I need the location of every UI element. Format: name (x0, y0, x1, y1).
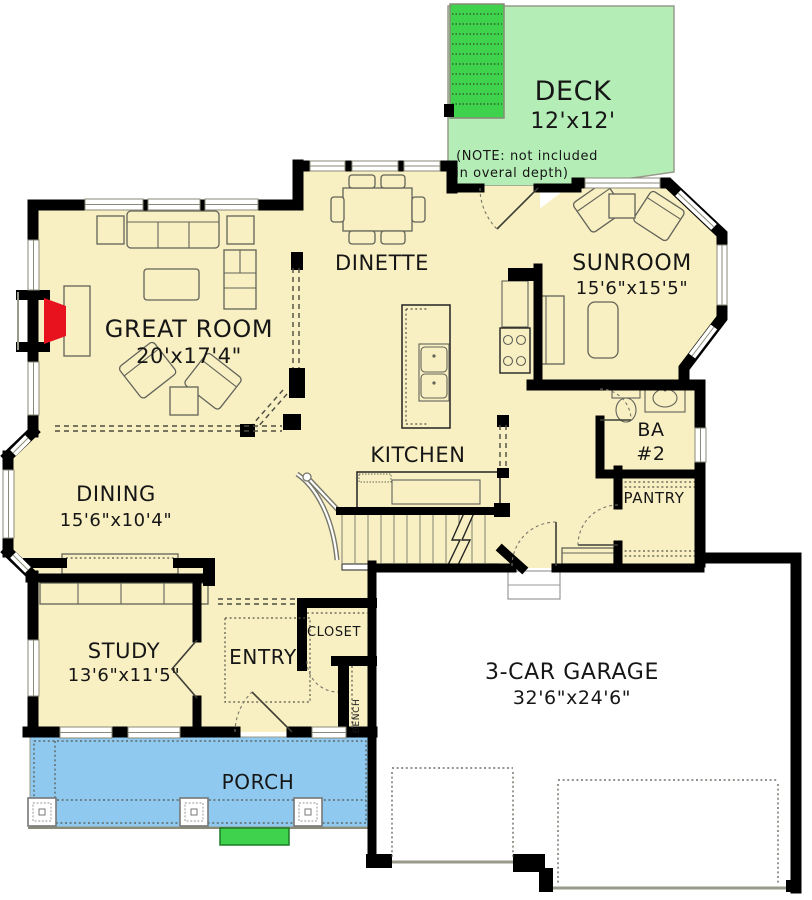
bench-label: BENCH (352, 699, 362, 734)
fireplace-box (44, 298, 66, 344)
study-bookcase (40, 583, 208, 604)
garage-floor (372, 558, 796, 888)
chair (381, 175, 405, 188)
garage-dims: 32'6"x24'6" (513, 687, 631, 709)
chair (349, 175, 375, 188)
deck-stairs (450, 4, 504, 118)
chair (331, 197, 344, 222)
kitchen-label: KITCHEN (370, 443, 465, 467)
coffee-table (144, 269, 199, 300)
mudroom-bench (562, 548, 614, 564)
porch-column (294, 798, 322, 826)
deck-label: DECK (535, 76, 613, 107)
sunroom-label: SUNROOM (572, 251, 692, 276)
porch-step (220, 828, 289, 845)
garage-label: 3-CAR GARAGE (485, 660, 659, 685)
side-table (97, 216, 124, 244)
pantry-label: PANTRY (624, 489, 685, 507)
porch-column (28, 798, 56, 826)
kitchen-island (402, 305, 450, 428)
closet-label: CLOSET (307, 625, 361, 640)
dinette-table (343, 188, 412, 231)
bath2-number: #2 (636, 443, 665, 465)
range (500, 328, 530, 373)
chair (412, 197, 425, 222)
study-dims: 13'6"x11'5" (68, 665, 180, 686)
coffee-table (588, 302, 618, 358)
accent-table (170, 387, 198, 415)
deck-note-line1: (NOTE: not included (456, 149, 598, 164)
floor-plan-drawing: DECK 12'x12' (NOTE: not included in over… (0, 0, 812, 900)
sofa (127, 211, 219, 248)
chair (381, 231, 405, 244)
hearth (64, 286, 90, 356)
sunroom-dims: 15'6"x15'5" (576, 278, 688, 299)
dining-dims: 15'6"x10'4" (60, 510, 172, 531)
deck-dims: 12'x12' (530, 109, 615, 134)
dining-label: DINING (76, 482, 156, 506)
floor-plan: DECK 12'x12' (NOTE: not included in over… (0, 0, 812, 900)
great-room-label: GREAT ROOM (105, 315, 273, 343)
side-table (227, 216, 254, 244)
buffet (62, 554, 178, 574)
dinette-label: DINETTE (335, 251, 429, 275)
porch-area (28, 737, 370, 845)
bath2-label: BA (637, 419, 664, 441)
great-room-dims: 20'x17'4" (136, 344, 242, 368)
porch-label: PORCH (222, 770, 295, 794)
study-label: STUDY (88, 639, 160, 663)
entry-label: ENTRY (229, 645, 297, 669)
deck-wall-stub (444, 104, 454, 117)
chair (349, 231, 375, 244)
deck-note-line2: in overal depth) (455, 166, 568, 181)
side-table (609, 194, 635, 218)
porch-column (180, 798, 208, 826)
